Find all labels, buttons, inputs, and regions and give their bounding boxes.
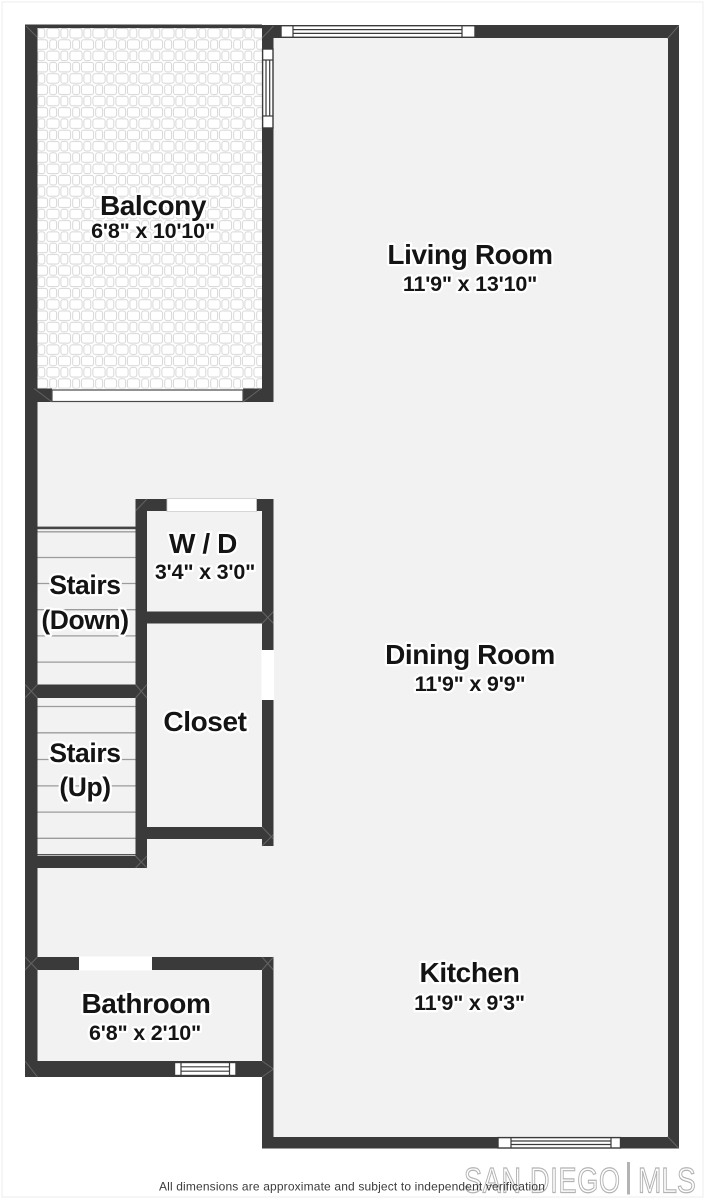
svg-text:6'8" x 10'10": 6'8" x 10'10" xyxy=(91,219,215,243)
svg-text:11'9" x 9'3": 11'9" x 9'3" xyxy=(414,991,525,1015)
svg-text:Dining Room: Dining Room xyxy=(385,639,555,670)
svg-text:3'4" x 3'0": 3'4" x 3'0" xyxy=(155,560,255,584)
svg-text:(Down): (Down) xyxy=(41,605,128,635)
svg-text:Living Room: Living Room xyxy=(387,239,552,270)
svg-text:11'9" x 13'10": 11'9" x 13'10" xyxy=(403,272,537,296)
svg-text:Stairs: Stairs xyxy=(49,738,120,768)
svg-text:6'8" x 2'10": 6'8" x 2'10" xyxy=(89,1021,201,1045)
svg-text:(Up): (Up) xyxy=(59,772,110,802)
svg-text:Closet: Closet xyxy=(163,706,246,737)
svg-text:Stairs: Stairs xyxy=(49,570,120,600)
svg-text:11'9" x 9'9": 11'9" x 9'9" xyxy=(415,672,526,696)
svg-text:Bathroom: Bathroom xyxy=(81,988,210,1019)
svg-text:Kitchen: Kitchen xyxy=(420,957,520,988)
svg-text:Balcony: Balcony xyxy=(100,190,207,221)
svg-text:W / D: W / D xyxy=(169,528,237,559)
svg-text:All dimensions are approximate: All dimensions are approximate and subje… xyxy=(159,1180,545,1194)
svg-text:MLS: MLS xyxy=(638,1160,696,1200)
